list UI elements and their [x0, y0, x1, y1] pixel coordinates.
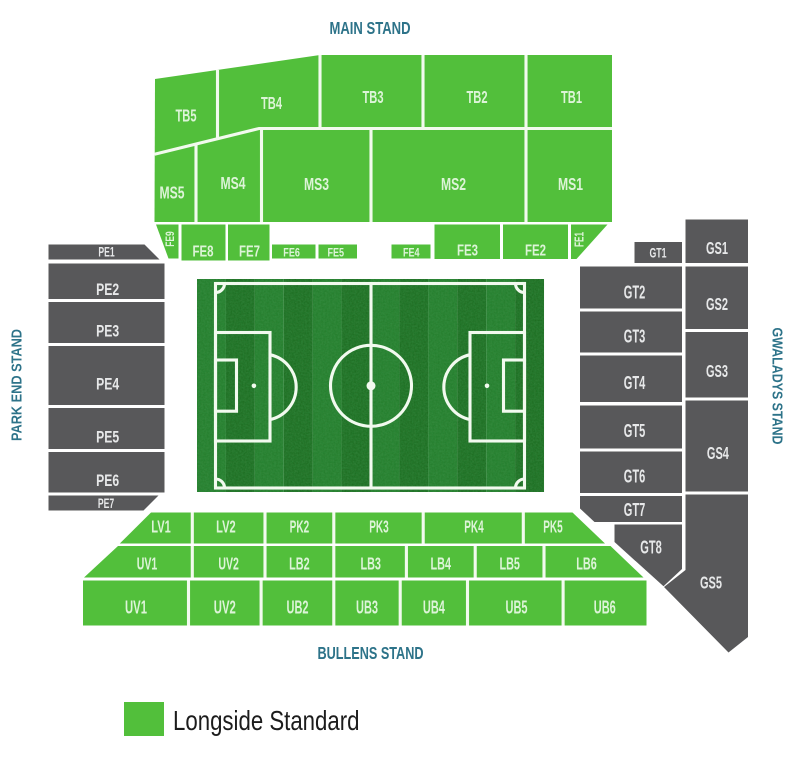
- svg-text:MS2: MS2: [441, 174, 466, 194]
- svg-text:UB4: UB4: [423, 597, 445, 618]
- svg-text:MS4: MS4: [221, 173, 246, 193]
- svg-text:TB5: TB5: [176, 105, 197, 125]
- svg-text:TB4: TB4: [261, 93, 282, 113]
- svg-text:FE1: FE1: [573, 232, 587, 247]
- svg-text:PK3: PK3: [369, 516, 389, 536]
- svg-text:PE4: PE4: [96, 374, 119, 393]
- svg-text:MS3: MS3: [304, 174, 329, 194]
- svg-text:PK5: PK5: [543, 516, 563, 536]
- svg-text:UV1: UV1: [125, 597, 147, 618]
- svg-text:GT4: GT4: [624, 372, 646, 393]
- svg-text:GT1: GT1: [650, 246, 667, 261]
- svg-text:FE4: FE4: [403, 246, 420, 260]
- svg-text:TB3: TB3: [363, 87, 384, 107]
- svg-text:TB2: TB2: [467, 87, 488, 107]
- svg-text:LB4: LB4: [431, 553, 452, 573]
- svg-text:MS5: MS5: [160, 182, 185, 202]
- svg-text:UV1: UV1: [137, 553, 158, 573]
- svg-text:GS5: GS5: [700, 573, 722, 593]
- svg-text:FE2: FE2: [525, 243, 546, 260]
- svg-text:PE3: PE3: [96, 321, 119, 340]
- svg-text:GWALADYS STAND: GWALADYS STAND: [769, 328, 786, 445]
- svg-text:FE7: FE7: [239, 243, 260, 260]
- svg-text:LV2: LV2: [216, 516, 236, 536]
- svg-text:LB3: LB3: [360, 553, 381, 573]
- svg-text:FE5: FE5: [328, 246, 345, 260]
- svg-text:PK4: PK4: [464, 516, 484, 536]
- svg-text:UB3: UB3: [356, 597, 378, 618]
- svg-text:FE3: FE3: [457, 243, 478, 260]
- svg-text:FE9: FE9: [163, 231, 177, 247]
- svg-text:PE2: PE2: [96, 280, 119, 299]
- svg-text:GS3: GS3: [706, 361, 728, 381]
- svg-text:GT8: GT8: [640, 536, 662, 557]
- svg-text:LB2: LB2: [289, 553, 310, 573]
- svg-text:FE8: FE8: [193, 243, 214, 260]
- svg-text:BULLENS STAND: BULLENS STAND: [318, 643, 424, 663]
- svg-text:GS2: GS2: [706, 294, 728, 314]
- svg-text:GS1: GS1: [706, 238, 728, 258]
- svg-text:UB2: UB2: [287, 597, 309, 618]
- svg-text:LV1: LV1: [151, 516, 171, 536]
- svg-text:UB5: UB5: [506, 597, 528, 618]
- svg-text:PE1: PE1: [98, 244, 115, 259]
- svg-text:GT5: GT5: [624, 420, 646, 441]
- svg-text:MAIN STAND: MAIN STAND: [330, 18, 411, 38]
- svg-text:LB5: LB5: [499, 553, 520, 573]
- svg-text:MS1: MS1: [558, 174, 583, 194]
- svg-text:TB1: TB1: [561, 87, 582, 107]
- svg-text:GT7: GT7: [624, 499, 646, 520]
- svg-text:PE5: PE5: [96, 427, 119, 446]
- svg-text:FE6: FE6: [283, 246, 300, 260]
- svg-text:PK2: PK2: [290, 516, 310, 536]
- svg-text:UB6: UB6: [594, 597, 616, 618]
- svg-text:PE7: PE7: [98, 496, 114, 511]
- svg-text:PE6: PE6: [96, 471, 119, 490]
- svg-text:GT2: GT2: [624, 282, 646, 303]
- svg-text:UV2: UV2: [218, 553, 239, 573]
- svg-text:PARK END STAND: PARK END STAND: [9, 329, 26, 441]
- svg-text:Longside Standard: Longside Standard: [173, 705, 360, 736]
- svg-text:LB6: LB6: [576, 553, 597, 573]
- svg-text:GT6: GT6: [624, 466, 646, 487]
- svg-text:GT3: GT3: [624, 326, 646, 347]
- svg-text:UV2: UV2: [214, 597, 236, 618]
- svg-text:GS4: GS4: [707, 443, 729, 463]
